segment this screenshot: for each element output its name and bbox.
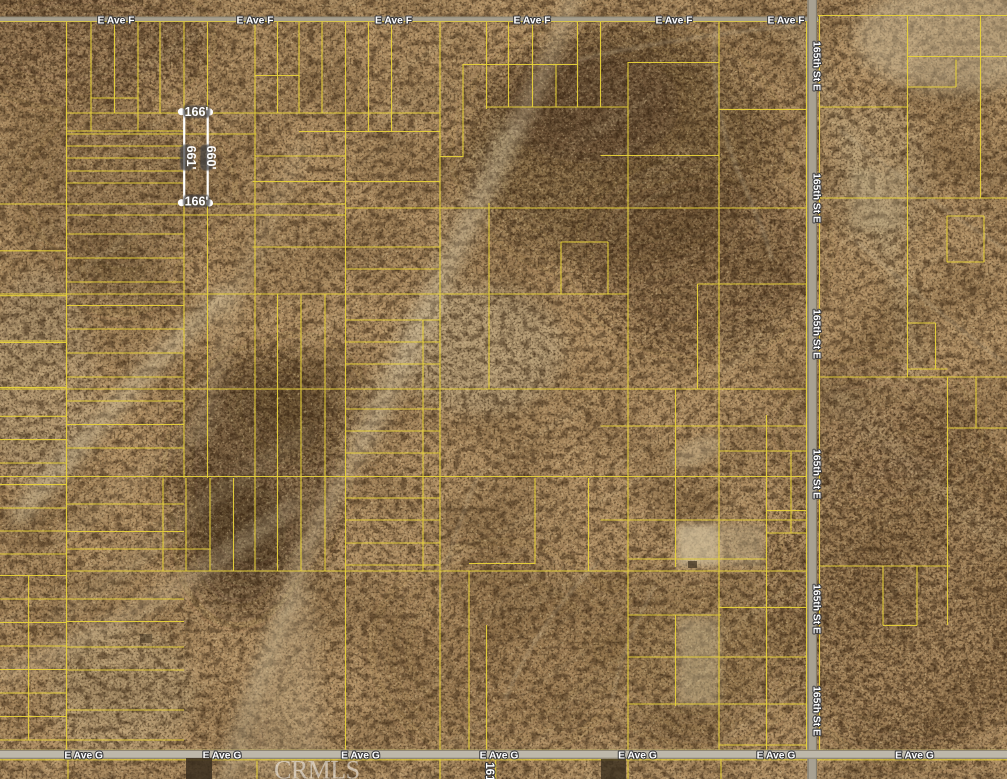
svg-text:165th St E: 165th St E bbox=[810, 686, 821, 736]
svg-text:E Ave G: E Ave G bbox=[480, 751, 519, 762]
svg-text:E Ave F: E Ave F bbox=[375, 16, 412, 27]
svg-text:E Ave G: E Ave G bbox=[64, 751, 103, 762]
svg-text:161: 161 bbox=[483, 762, 495, 779]
svg-text:660': 660' bbox=[204, 146, 218, 170]
svg-text:CRMLS: CRMLS bbox=[274, 756, 360, 779]
svg-text:165th St E: 165th St E bbox=[810, 41, 821, 91]
svg-text:E Ave F: E Ave F bbox=[97, 16, 134, 27]
svg-text:165th St E: 165th St E bbox=[810, 173, 821, 223]
svg-text:165th St E: 165th St E bbox=[810, 309, 821, 359]
svg-text:E Ave F: E Ave F bbox=[236, 16, 273, 27]
svg-text:166': 166' bbox=[185, 194, 209, 208]
svg-text:E Ave G: E Ave G bbox=[895, 751, 934, 762]
svg-text:E Ave F: E Ave F bbox=[513, 16, 550, 27]
svg-text:165th St E: 165th St E bbox=[810, 449, 821, 499]
svg-text:166': 166' bbox=[185, 105, 209, 119]
svg-text:E Ave F: E Ave F bbox=[767, 16, 804, 27]
svg-text:E Ave F: E Ave F bbox=[655, 16, 692, 27]
svg-text:E Ave G: E Ave G bbox=[757, 751, 796, 762]
svg-text:661': 661' bbox=[184, 146, 198, 170]
svg-text:165th St E: 165th St E bbox=[810, 584, 821, 634]
